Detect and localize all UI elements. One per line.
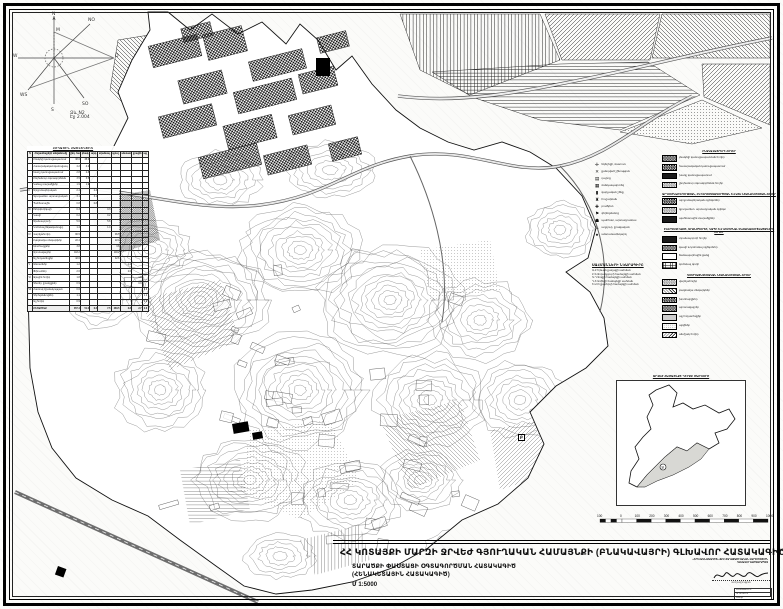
legend-item: խոտհարքներ xyxy=(662,297,776,304)
symbol-8-icon: ☗ xyxy=(594,219,600,224)
symbol-5-icon: ♜ xyxy=(594,198,600,203)
legend-item: արդյունաբերական օբյեկտներ xyxy=(662,198,776,205)
legend-item: բնակելի կառուցապատման հողեր xyxy=(662,155,776,162)
legend-label: խառը կառուցապատում xyxy=(679,175,712,178)
land-table-cell: 2.6 xyxy=(143,306,149,312)
legend-item: արոտավայրեր xyxy=(662,305,776,312)
legend-swatch xyxy=(662,323,677,330)
organization-block: «ԵՐԵՎԱՆՆԱԽԱԳԻԾ» ՓԲԸ ՔԱՂԱՔԱՇԻՆԱԿԱՆ ՎԱՐՉՈՒ… xyxy=(650,558,768,564)
legend-item: կոմունալ գոտի xyxy=(662,262,776,269)
symbol-item: ♜հուշարձան xyxy=(594,198,666,203)
compass-label-no: NO xyxy=(88,17,95,23)
legend-section-title: ԳՅՈՒՂԱՏՆՏԵՍԱԿԱՆ ՆՇԱՆԱԿՈՒԹՅԱՆ ՀՈՂԵՐ xyxy=(662,274,776,277)
inset-highlight-area xyxy=(637,443,709,487)
symbol-label: դպրոց xyxy=(602,178,611,181)
land-table-grid: NՀողատեսքերի անվանումըընդ. հաբնակ.արդ.տր… xyxy=(27,151,149,312)
symbol-item: ✚բուժկետ xyxy=(594,205,666,210)
legend-section: ԳՅՈՒՂԱՏՆՏԵՍԱԿԱՆ ՆՇԱՆԱԿՈՒԹՅԱՆ ՀՈՂԵՐվարելա… xyxy=(662,274,776,338)
legend-swatch xyxy=(662,245,677,252)
legend-swatch xyxy=(662,314,677,321)
legend-swatch xyxy=(662,305,677,312)
symbol-7-icon: ⚑ xyxy=(594,212,600,217)
titleblock-divider xyxy=(333,540,771,541)
svg-text:100: 100 xyxy=(597,514,603,518)
legend-label: անմշակ հողեր xyxy=(679,334,699,337)
symbol-0-icon: ✛ xyxy=(594,163,600,168)
svg-text:1000: 1000 xyxy=(766,514,773,518)
svg-text:800: 800 xyxy=(737,514,743,518)
symbol-label: բուժկետ xyxy=(602,206,614,209)
legend-swatch xyxy=(662,279,677,286)
land-table-cell: 2.7 xyxy=(132,306,143,312)
symbol-label: վարչական շենք xyxy=(602,192,624,195)
legend-swatch xyxy=(662,253,677,260)
compass-label-s: S xyxy=(51,107,54,113)
legend-label: խոտհարքներ xyxy=(679,299,697,302)
legend-swatch xyxy=(662,198,677,205)
symbol-label: պահեստ, արտադրամաս xyxy=(602,220,637,223)
legend-item: անմշակ հողեր xyxy=(662,332,776,339)
legend-swatch xyxy=(662,262,677,269)
legend-label: ընդհանուր օգտագործման հողեր xyxy=(679,183,723,186)
land-table-body: IԲնակելի կառուցապատում38.638.6Հասարակակա… xyxy=(28,158,149,312)
land-table-cell: 7.5 xyxy=(98,306,112,312)
legend-label: այգիներ xyxy=(679,325,690,328)
svg-text:500: 500 xyxy=(693,514,699,518)
svg-text:900: 900 xyxy=(751,514,757,518)
symbol-item: ☗պահեստ, արտադրամաս xyxy=(594,219,666,224)
symbol-10-icon: ♠ xyxy=(594,233,600,238)
symbol-item: ✛եկեղեցի, մատուռ xyxy=(594,163,666,168)
symbol-label: հուշարձան xyxy=(602,199,618,202)
symbol-label: աղբյուր, ջրավազան xyxy=(602,227,630,230)
legend-swatch xyxy=(662,297,677,304)
compass-note-2: Էջ 2.004 xyxy=(70,114,90,120)
field-block-1 xyxy=(545,14,660,60)
symbol-6-icon: ✚ xyxy=(594,205,600,210)
symbol-item: ▮վարչական շենք xyxy=(594,191,666,196)
inset-region-outline xyxy=(629,385,735,487)
legend-section: ԲՆԱԿԱՎԱՅՐԵՐԻ ՀՈՂԵՐբնակելի կառուցապատման … xyxy=(662,150,776,188)
symbol-label: մանկապարտեզ xyxy=(602,185,625,188)
sheet-subtitle-block: ՏԱՐԱԾՔԻ ՓԱՍՏԱՑԻ ՕԳՏԱԳՈՐԾՄԱՆ ՀԱՏԱԿԱԳԻԾ (Հ… xyxy=(352,564,516,588)
legend-swatch xyxy=(662,332,677,339)
symbol-1-icon: ✕ xyxy=(594,170,600,175)
legend-section-title: ԱՐԴՅՈՒՆԱԲԵՐՈՒԹՅԱՆ, ԸՆԴԵՐՔՕԳՏԱԳՈՐԾՄԱՆ ԵՎ … xyxy=(662,193,776,196)
legend-swatch xyxy=(662,182,677,189)
legend-item: տրանսպորտի հողեր xyxy=(662,236,776,243)
legend-section: ԱՐԴՅՈՒՆԱԲԵՐՈՒԹՅԱՆ, ԸՆԴԵՐՔՕԳՏԱԳՈՐԾՄԱՆ ԵՎ … xyxy=(662,193,776,222)
symbol-2-icon: ▤ xyxy=(594,177,600,182)
symbol-label: անտառատնկարկ xyxy=(602,234,627,237)
map-sheet: N M NO O W WS S SO Ձև N2 Էջ 2.004 ՀՈՂԱՅԻ… xyxy=(0,0,783,609)
legend-label: հասարակական կառուցապատում xyxy=(679,166,725,169)
svg-text:200: 200 xyxy=(649,514,655,518)
legend-swatch xyxy=(662,207,677,214)
inset-locator: ՋՐՎԵԺ ՀԱՄԱՅՆՔԻ ԴԻՐՔԸ ՄԱՐԶՈՒՄ Ջ xyxy=(616,374,746,506)
compass-label-w: W xyxy=(13,53,18,59)
symbol-label: քանդված շինություն xyxy=(602,171,630,174)
inset-map: Ջ xyxy=(616,380,746,506)
legend-label: կոմունալ գոտի xyxy=(679,264,699,267)
land-table-cell: ԸՆԴԱՄԵՆԸ xyxy=(32,306,69,312)
legend-section: ԷՆԵՐԳԵՏԻԿԱՅԻ, ՏՐԱՆՍՊՈՐՏԻ, ԿԱՊԻ ԵՎ ԿՈՄՈՒՆ… xyxy=(662,228,776,269)
legend-item: կապի և կոմունալ օբյեկտներ xyxy=(662,245,776,252)
symbol-item: ⚑գերեզմանոց xyxy=(594,212,666,217)
legend-item: հասարակական կառուցապատում xyxy=(662,164,776,171)
built-feature-2 xyxy=(316,58,330,76)
legend-section-title: ԷՆԵՐԳԵՏԻԿԱՅԻ, ՏՐԱՆՍՊՈՐՏԻ, ԿԱՊԻ ԵՎ ԿՈՄՈՒՆ… xyxy=(662,228,776,234)
compass-label-ws: WS xyxy=(20,92,27,98)
legend-swatch xyxy=(662,288,677,295)
legend-swatch xyxy=(662,173,677,180)
symbols-legend: ✛եկեղեցի, մատուռ✕քանդված շինություն▤դպրո… xyxy=(594,163,666,240)
legend-swatch xyxy=(662,164,677,171)
sheet-subtitle-1: ՏԱՐԱԾՔԻ ՓԱՍՏԱՑԻ ՕԳՏԱԳՈՐԾՄԱՆ ՀԱՏԱԿԱԳԻԾ xyxy=(352,564,516,572)
svg-text:700: 700 xyxy=(722,514,728,518)
legend-item: գյուղատնտ. արտադրական օբյեկտ xyxy=(662,207,776,214)
compass-label-m: M xyxy=(56,27,60,33)
symbol-item: ✕քանդված շինություն xyxy=(594,170,666,175)
inset-marker-label: Ջ xyxy=(661,466,664,470)
legend-item: բազմամյա տնկարկներ xyxy=(662,288,776,295)
organization-line-2: ԳԼԽԱՎՈՐ ՃԱՐՏԱՐԱՊԵՏ xyxy=(650,561,768,564)
symbol-3-icon: ▦ xyxy=(594,184,600,189)
titleblock-divider-thin xyxy=(333,543,771,544)
symbol-9-icon: ♨ xyxy=(594,226,600,231)
sheet-scale: Մ 1:5000 xyxy=(352,581,516,588)
legend-label: վարելահողեր xyxy=(679,281,697,284)
legend-item: պահեստային տարածքներ xyxy=(662,216,776,223)
land-table-cell: 283.5 xyxy=(111,306,120,312)
land-table-cell: 51.0 xyxy=(81,306,90,312)
symbol-item: ▦մանկապարտեզ xyxy=(594,184,666,189)
sheet-subtitle-2: (ՀԵՆԱԿԵՏԱՅԻՆ ՀԱՏԱԿԱԳԻԾ) xyxy=(352,572,516,580)
legend-label: արոտավայրեր xyxy=(679,307,699,310)
legend-label: գյուղատնտ. արտադրական օբյեկտ xyxy=(679,209,726,212)
legend-label: արդյունաբերական օբյեկտներ xyxy=(679,200,720,203)
inset-title: ՋՐՎԵԺ ՀԱՄԱՅՆՔԻ ԴԻՐՔԸ ՄԱՐԶՈՒՄ xyxy=(616,374,746,378)
svg-text:400: 400 xyxy=(678,514,684,518)
landuse-legend: ԲՆԱԿԱՎԱՅՐԵՐԻ ՀՈՂԵՐբնակելի կառուցապատման … xyxy=(662,150,776,343)
compass-label-o: O xyxy=(115,53,119,59)
legend-item: այլ հողատեսքեր xyxy=(662,314,776,321)
compass-label-so: SO xyxy=(82,101,89,107)
svg-text:600: 600 xyxy=(708,514,714,518)
signature-caption: ստորագրություն xyxy=(712,581,770,584)
symbol-item: ♨աղբյուր, ջրավազան xyxy=(594,226,666,231)
legend-label: տրանսպորտի հողեր xyxy=(679,238,707,241)
legend-label: ճանապարհային ցանց xyxy=(679,255,709,258)
built-feature-3 xyxy=(55,566,67,578)
legend-label: բազմամյա տնկարկներ xyxy=(679,290,710,293)
legend-label: բնակելի կառուցապատման հողեր xyxy=(679,157,725,160)
sheet-title: ՀՀ ԿՈՏԱՅՔԻ ՄԱՐԶԻ ՋՐՎԵԺ ԳՅՈՒՂԱԿԱՆ ՀԱՄԱՅՆՔ… xyxy=(340,547,770,558)
legend-label: այլ հողատեսքեր xyxy=(679,316,701,319)
legend-item: վարելահողեր xyxy=(662,279,776,286)
compass-diagram: N M NO O W WS S SO Ձև N2 Էջ 2.004 xyxy=(12,10,124,122)
symbol-label: եկեղեցի, մատուռ xyxy=(602,164,626,167)
legend-item: ճանապարհային ցանց xyxy=(662,253,776,260)
symbol-label: գերեզմանոց xyxy=(602,213,619,216)
stamp-box: ՀԱՍՏԱՏՎԱԾ Է ՈՐՈՇՈՒՄ N 2004 թ. xyxy=(734,588,772,600)
map-boundary-marker-b: Բ xyxy=(518,434,525,441)
land-table-title: ՀՈՂԱՅԻՆ ՀԱՇՎԵԿՇԻՌ xyxy=(27,146,119,150)
legend-label: կապի և կոմունալ օբյեկտներ xyxy=(679,247,717,250)
land-table-cell: 3.8 xyxy=(120,306,131,312)
legend-item: խառը կառուցապատում xyxy=(662,173,776,180)
signature-block: ստորագրություն xyxy=(712,568,770,584)
symbol-item: ♠անտառատնկարկ xyxy=(594,233,666,238)
scale-bar: 10001002003004005006007008009001000 xyxy=(596,508,778,530)
land-table-row: ԸՆԴԱՄԵՆԸ357.451.06.37.5283.53.82.72.6 xyxy=(28,306,149,312)
symbol-4-icon: ▮ xyxy=(594,191,600,196)
legend-item: ընդհանուր օգտագործման հողեր xyxy=(662,182,776,189)
compass-label-n: N xyxy=(52,11,55,17)
legend-label: պահեստային տարածքներ xyxy=(679,218,715,221)
legend-swatch xyxy=(662,216,677,223)
svg-text:300: 300 xyxy=(664,514,670,518)
legend-swatch xyxy=(662,236,677,243)
legend-section-title: ԲՆԱԿԱՎԱՅՐԵՐԻ ՀՈՂԵՐ xyxy=(662,150,776,153)
land-balance-table: ՀՈՂԱՅԻՆ ՀԱՇՎԵԿՇԻՌ NՀողատեսքերի անվանումը… xyxy=(27,146,119,312)
stamp-line-3: 2004 թ. xyxy=(735,597,771,600)
land-table-cell: 6.3 xyxy=(90,306,98,312)
svg-text:100: 100 xyxy=(635,514,641,518)
legend-item: այգիներ xyxy=(662,323,776,330)
land-table-cell: 357.4 xyxy=(69,306,80,312)
symbol-item: ▤դպրոց xyxy=(594,177,666,182)
svg-text:0: 0 xyxy=(620,514,622,518)
legend-swatch xyxy=(662,155,677,162)
